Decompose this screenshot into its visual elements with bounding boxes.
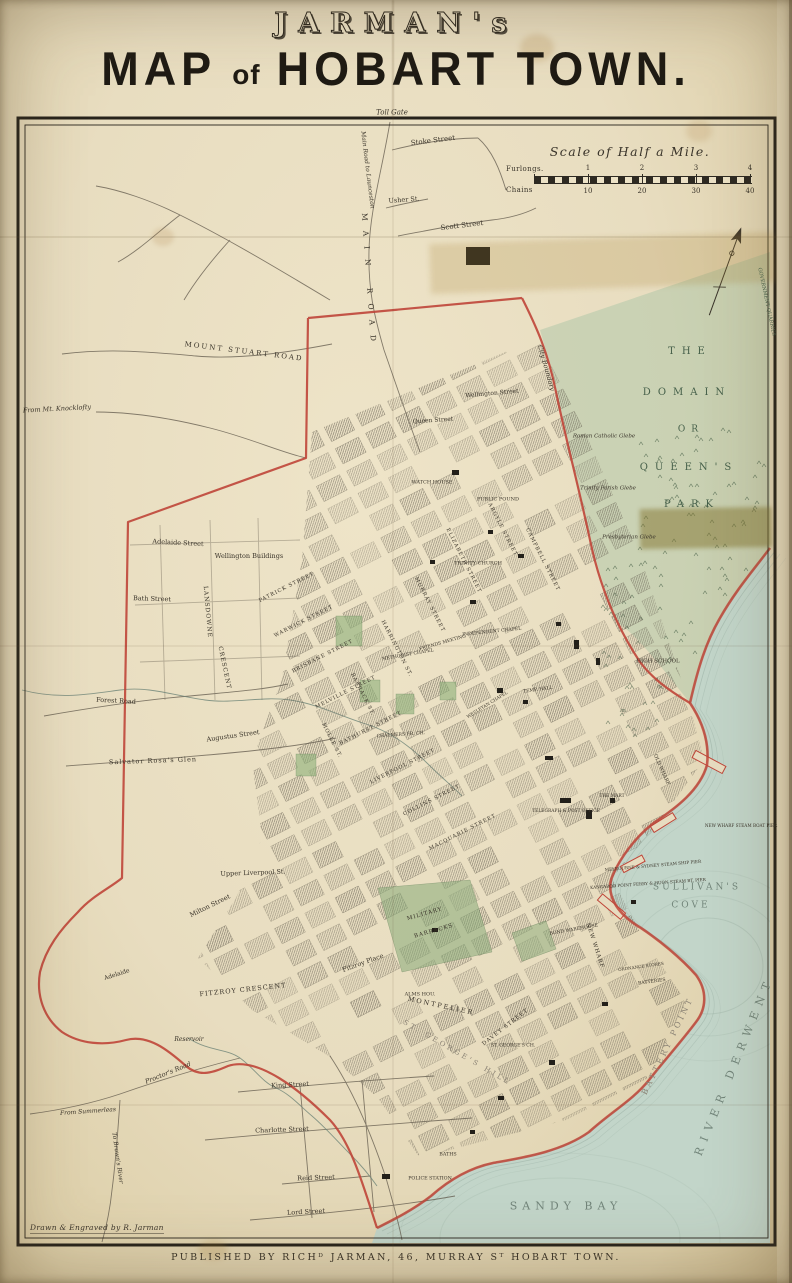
scale-tick-furlong-2: 2 xyxy=(640,164,644,172)
map-label-adelaide: Adelaide xyxy=(103,968,130,982)
scale-tick-chain-40: 40 xyxy=(746,187,755,195)
scale-bar: Scale of Half a Mile. Furlongs. Chains 1… xyxy=(506,144,754,198)
scale-bar-furlongs-label: Furlongs. xyxy=(506,165,544,173)
map-label-sandy-bay: SANDY BAY xyxy=(510,1201,623,1212)
scale-tick-mark xyxy=(642,174,643,184)
title-word-hobart-town: HOBART TOWN. xyxy=(277,41,691,96)
map-label-liverpool-street: LIVERPOOL STREET xyxy=(370,748,437,785)
map-label-domain: DOMAIN xyxy=(643,388,731,398)
map-label-batteries: BATTERIES xyxy=(638,979,666,987)
map-label-roman-catholic-glebe: Roman Catholic Glebe xyxy=(573,434,635,440)
scale-tick-mark xyxy=(588,174,589,184)
map-label-new-wharf-steam-boat-pier: NEW WHARF STEAM BOAT PIER xyxy=(705,824,777,828)
scale-tick-furlong-4: 4 xyxy=(748,164,752,172)
scale-tick-mark xyxy=(534,174,535,184)
title-block: JARMAN's MAP of HOBART TOWN. xyxy=(0,8,792,95)
map-label-presbyterian-glebe: Presbyterian Glebe xyxy=(602,535,656,541)
map-label-harrington-st: HARRINGTON ST. xyxy=(379,620,412,678)
map-label-to-brown-s-river: To Brown's River xyxy=(110,1132,123,1184)
map-label-wellington-buildings: Wellington Buildings xyxy=(215,553,283,560)
map-label-lord-street: Lord Street xyxy=(287,1208,325,1216)
map-label-mount-stuart-road: MOUNT STUART ROAD xyxy=(184,341,304,363)
scale-tick-mark xyxy=(696,174,697,184)
map-label-augustus-street: Augustus Street xyxy=(206,729,260,743)
map-label-public-pound: PUBLIC POUND xyxy=(477,498,519,503)
map-label-methodist-chapel: METHODIST CHAPEL xyxy=(382,649,434,663)
map-label-king-street: King Street xyxy=(271,1081,309,1089)
map-label-forest-road: Forest Road xyxy=(96,697,136,706)
map-label-barracks: BARRACKS xyxy=(414,924,454,940)
map-label-police-station: POLICE STATION xyxy=(408,1178,452,1183)
scale-tick-chain-30: 30 xyxy=(692,187,701,195)
scale-tick-furlong-3: 3 xyxy=(694,164,698,172)
map-scan-page: Toll GateMain Road to LauncestonStoke St… xyxy=(0,0,792,1283)
map-label-bath-street: Bath Street xyxy=(133,595,171,603)
title-word-map: MAP xyxy=(101,41,216,96)
map-label-main-road: MAIN ROAD xyxy=(360,213,377,351)
map-label-the: THE xyxy=(668,347,712,357)
map-label-collins-street: COLLINS STREET xyxy=(403,784,461,817)
map-label-crescent: CRESCENT xyxy=(217,646,232,690)
map-label-scott-street: Scott Street xyxy=(440,220,483,232)
map-label-davey-street: DAVEY STREET xyxy=(482,1008,530,1047)
scale-tick-mark xyxy=(750,174,751,184)
map-title-line2: MAP of HOBART TOWN. xyxy=(0,43,792,95)
title-word-of: of xyxy=(232,59,260,91)
map-label-government-quarries: GOVERNMENT QUARRIES xyxy=(756,267,775,336)
map-label-milton-street: Milton Street xyxy=(189,893,231,918)
map-label-macquarie-street: MACQUARIE STREET xyxy=(429,814,498,853)
map-label-fitzroy-crescent: FITZROY CRESCENT xyxy=(199,982,287,998)
map-label-independent-chapel: INDEPENDENT CHAPEL xyxy=(462,628,521,639)
map-label-queen-s: QUEEN'S xyxy=(640,463,739,473)
map-label-warwick-street: WARWICK STREET xyxy=(274,605,335,639)
map-label-adelaide-street: Adelaide Street xyxy=(152,538,204,547)
map-label-queen-street: Queen Street xyxy=(413,417,454,426)
engraver-credit: Drawn & Engraved by R. Jarman xyxy=(30,1223,164,1234)
map-label-old-wharf: OLD WHARF xyxy=(652,754,670,787)
map-label-city-boundary: City Boundary xyxy=(536,344,555,391)
map-label-brisbane-street: BRISBANE STREET xyxy=(292,639,355,674)
map-label-ordnance-stores: ORDNANCE STORES xyxy=(618,962,664,973)
map-label-upper-liverpool-st: Upper Liverpool St. xyxy=(220,869,285,878)
map-label-baths: BATHS xyxy=(439,1154,456,1159)
map-label-telegraph-post-office: TELEGRAPH & POST OFFICE xyxy=(532,810,600,814)
map-label-melbourne-sydney-steam-ship-pier: MELBOURNE & SYDNEY STEAM SHIP PIER xyxy=(605,860,702,873)
map-label-trinity-parish-glebe: Trinity Parish Glebe xyxy=(580,486,636,492)
map-label-salvator-rosa-s-glen: Salvator Rosa's Glen xyxy=(109,756,197,766)
map-label-charlotte-street: Charlotte Street xyxy=(255,1126,309,1134)
map-label-wellington-street: Wellington Street xyxy=(465,389,519,400)
scale-bar-rule xyxy=(534,176,752,184)
scale-tick-furlong-1: 1 xyxy=(586,164,590,172)
scale-bar-chains-label: Chains xyxy=(506,186,533,194)
map-label-battery-point: BATTERY POINT xyxy=(641,996,696,1097)
map-label-st-george-s-hill: ST. GEORGE'S HILL xyxy=(402,1019,512,1087)
map-label-reid-street: Reid Street xyxy=(297,1174,335,1182)
map-label-river-derwent: RIVER DERWENT xyxy=(693,975,775,1158)
map-label-chalmers-fr-ch: CHALMERS FR. CH. xyxy=(377,732,426,740)
scale-tick-chain-20: 20 xyxy=(638,187,647,195)
map-label-montpelier: MONTPELIER xyxy=(407,996,475,1016)
map-label-fitzroy-place: Fitzroy Place xyxy=(342,953,385,974)
map-label-from-summerleas: From Summerleas xyxy=(60,1107,116,1117)
map-label-temp-hall: TEMP. HALL xyxy=(523,687,553,696)
map-label-murray-street: MURRAY STREET xyxy=(413,577,445,634)
map-label-main-road-to-launceston: Main Road to Launceston xyxy=(359,131,374,209)
map-label-stoke-street: Stoke Street xyxy=(410,135,455,147)
scale-tick-chain-10: 10 xyxy=(584,187,593,195)
map-label-patrick-street: PATRICK STREET xyxy=(258,572,315,604)
map-label-lansdowne: LANSDOWNE xyxy=(202,586,213,639)
map-label-argyle-street: ARGYLE STREET xyxy=(486,503,517,558)
map-label-the-mart: THE MART xyxy=(599,795,624,799)
map-label-or: OR xyxy=(678,426,704,435)
map-label-reservoir: Reservoir xyxy=(174,1037,203,1043)
map-label-st-george-s-ch: ST. GEORGE'S CH. xyxy=(491,1045,536,1050)
scale-bar-rule-group: Furlongs. Chains 1 2 3 4 10 20 30 40 xyxy=(506,162,754,198)
map-title-line1: JARMAN's xyxy=(274,8,517,39)
map-label-high-school: HIGH SCHOOL xyxy=(636,659,679,665)
map-label-from-mt-knocklofty: From Mt. Knocklofty xyxy=(23,404,92,414)
scale-bar-title: Scale of Half a Mile. xyxy=(506,144,754,159)
publisher-imprint: PUBLISHED BY RICHᴰ JARMAN, 46, MURRAY Sᵀ… xyxy=(0,1252,792,1263)
map-label-toll-gate: Toll Gate xyxy=(376,110,408,117)
map-label-usher-st: Usher St. xyxy=(388,196,420,205)
map-label-sullivan-s: SULLIVAN'S xyxy=(653,884,741,893)
map-label-military: MILITARY xyxy=(407,907,444,922)
map-label-wesleyan-chapel: WESLEYAN CHAPEL xyxy=(467,692,509,721)
map-label-cove: COVE xyxy=(671,902,710,911)
map-label-proctor-s-road: Proctor's Road xyxy=(144,1061,192,1085)
map-label-campbell-street: CAMPBELL STREET xyxy=(524,528,560,592)
map-label-watch-house: WATCH HOUSE xyxy=(411,481,452,486)
map-label-park: PARK xyxy=(664,500,720,510)
